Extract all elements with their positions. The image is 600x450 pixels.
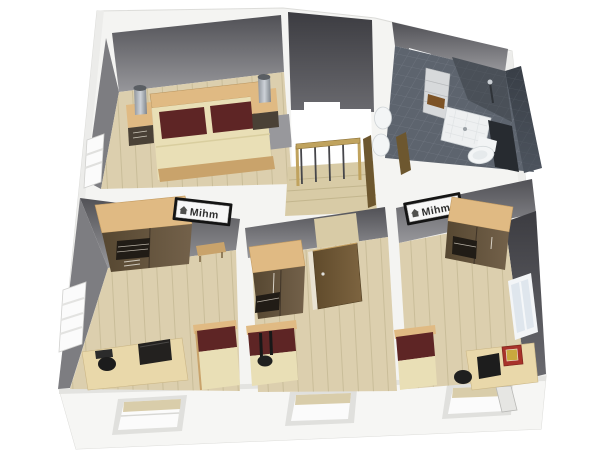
stair-far-wall xyxy=(288,12,374,112)
bed-pillow xyxy=(396,332,435,361)
office-chair-right xyxy=(454,370,472,384)
room-bottom-middle xyxy=(245,207,397,392)
red-case-lid xyxy=(506,349,518,361)
open-door-middle xyxy=(308,243,362,310)
lamp-body xyxy=(258,76,271,103)
room-bottom-left: Mihm xyxy=(58,196,240,391)
facade-window-2 xyxy=(285,389,357,426)
room-bottom-right: Mihm xyxy=(394,179,546,390)
wardrobe-right xyxy=(445,197,513,270)
bed-right-room xyxy=(394,325,437,390)
bed-left-room xyxy=(193,320,240,390)
bed-duvet xyxy=(398,356,437,390)
nightstand-front xyxy=(128,125,154,146)
monitor xyxy=(477,353,501,379)
bedroom-window xyxy=(84,134,104,188)
bedroom xyxy=(84,15,292,189)
lamp-body xyxy=(134,87,147,115)
table-lamp-left xyxy=(134,85,148,115)
table-lamp-right xyxy=(258,74,271,103)
nightstand-front xyxy=(252,111,279,130)
door-leaf xyxy=(313,243,362,309)
pillow-right xyxy=(210,101,257,133)
washbasin-2 xyxy=(373,134,390,156)
stair-hall xyxy=(285,12,377,216)
lamp-top xyxy=(258,74,271,80)
floorplan-canvas: Mihm xyxy=(0,0,600,450)
bed-duvet xyxy=(250,351,298,386)
bathroom xyxy=(373,22,543,175)
bed-duvet xyxy=(198,347,240,390)
floorplan-3d-view[interactable]: Mihm xyxy=(0,0,600,450)
pillow-left xyxy=(159,107,207,139)
door-handle xyxy=(321,272,324,275)
chair-seat xyxy=(258,356,273,367)
facade-window-1 xyxy=(112,395,187,435)
office-chair-seat xyxy=(98,357,116,371)
red-case xyxy=(502,345,523,366)
wardrobe-middle xyxy=(249,240,305,319)
window-reveal xyxy=(295,393,351,405)
lamp-top xyxy=(134,85,147,91)
washbasin-1 xyxy=(375,107,392,129)
drain xyxy=(463,127,467,131)
